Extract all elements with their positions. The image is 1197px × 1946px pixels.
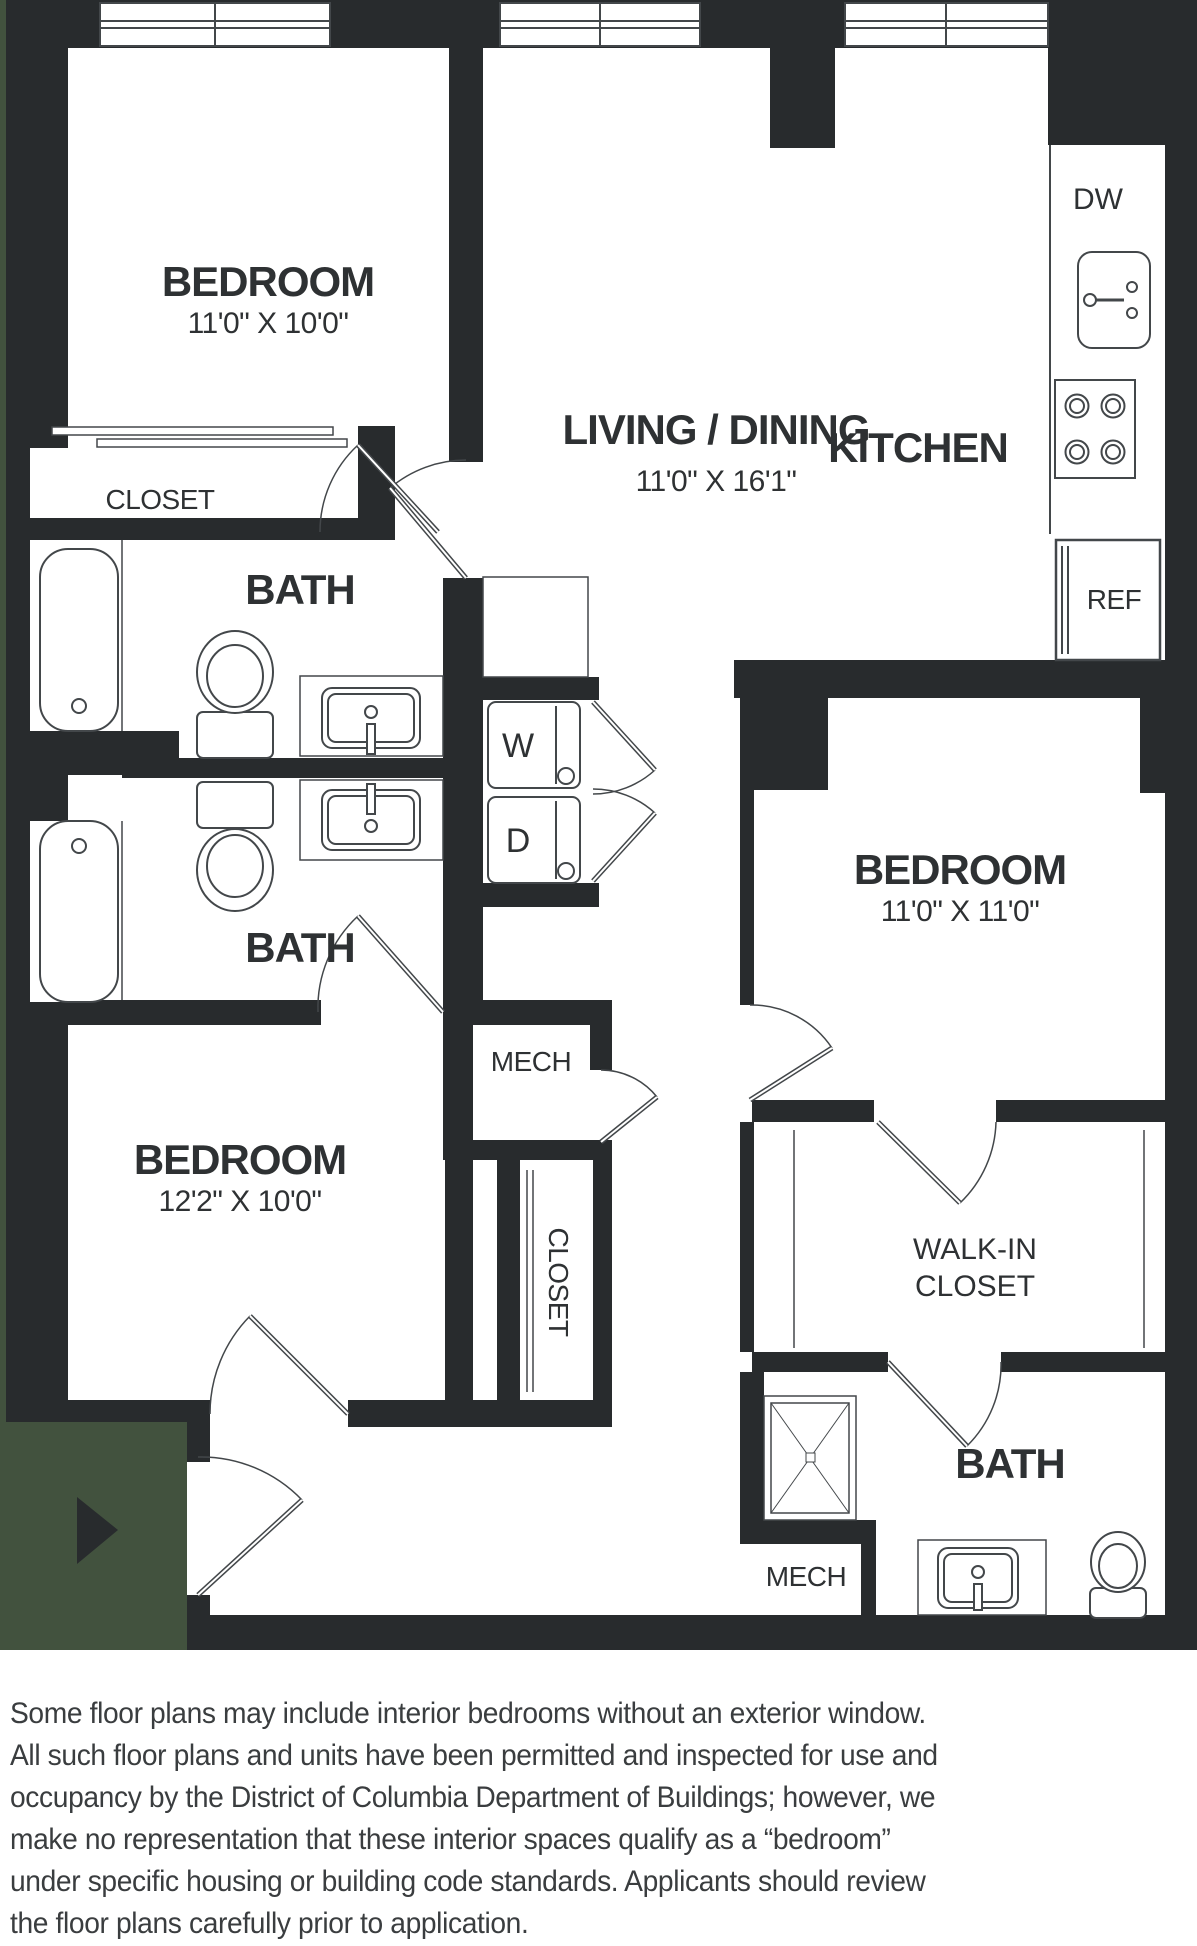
bypass-doors	[52, 427, 347, 447]
walls-layer	[6, 0, 1197, 1650]
bedroom1-label: BEDROOM	[162, 261, 374, 303]
living-dining-label: LIVING / DINING	[562, 409, 869, 451]
dishwasher-label: DW	[1073, 185, 1123, 215]
dryer-icon	[488, 797, 580, 883]
bath2-fixtures	[40, 780, 443, 1002]
walkin-label-line2: CLOSET	[915, 1272, 1035, 1302]
bathtub-icon	[40, 549, 118, 731]
disclaimer-line: make no representation that these interi…	[10, 1819, 1185, 1861]
bath1-fixtures	[40, 540, 443, 758]
windows	[100, 3, 1048, 46]
toilet-icon	[197, 631, 273, 758]
bedroom3-label: BEDROOM	[134, 1139, 346, 1181]
stove-icon	[1055, 380, 1135, 478]
disclaimer-line: the floor plans carefully prior to appli…	[10, 1903, 1185, 1945]
door-swing	[210, 1316, 348, 1414]
window-icon	[845, 3, 1048, 46]
bedroom3-dims: 12'2" X 10'0"	[158, 1187, 321, 1217]
kitchen-fixtures	[1050, 145, 1160, 660]
mech1-label: MECH	[491, 1048, 571, 1076]
mech2-label: MECH	[766, 1563, 846, 1591]
bath3-label: BATH	[955, 1443, 1065, 1485]
door-swing	[888, 1362, 1001, 1446]
kitchen-label: KITCHEN	[828, 427, 1008, 469]
disclaimer-line: under specific housing or building code …	[10, 1861, 1185, 1903]
floor-plan: BEDROOM 11'0" X 10'0" LIVING / DINING 11…	[0, 0, 1197, 1650]
kitchen-sink-icon	[1078, 252, 1150, 348]
disclaimer-line: All such floor plans and units have been…	[10, 1735, 1185, 1777]
bedroom1-dims: 11'0" X 10'0"	[188, 309, 349, 339]
closet1-label: CLOSET	[105, 486, 214, 514]
door-swing	[601, 1070, 657, 1142]
closet-rod-lines	[527, 1170, 533, 1392]
bedroom2-dims: 11'0" X 11'0"	[881, 897, 1040, 927]
sink-icon	[918, 1540, 1046, 1615]
walkin-label-line1: WALK-IN	[913, 1235, 1037, 1265]
sink-icon	[300, 780, 443, 860]
refrigerator-label: REF	[1087, 586, 1142, 614]
toilet-icon	[197, 782, 273, 911]
washer-label: W	[502, 729, 534, 763]
window-icon	[100, 3, 330, 46]
floorplan-page: { "meta": { "wall_color": "#282b2d", "ac…	[0, 0, 1197, 1946]
disclaimer-line: occupancy by the District of Columbia De…	[10, 1777, 1185, 1819]
closet2-label: CLOSET	[544, 1227, 572, 1336]
bedroom2-label: BEDROOM	[854, 849, 1066, 891]
bath2-label: BATH	[245, 927, 355, 969]
floor-plan-drawing	[0, 0, 1197, 1650]
sink-icon	[300, 676, 443, 756]
dryer-label: D	[506, 824, 531, 858]
shower-icon	[764, 1396, 856, 1520]
disclaimer-text: Some floor plans may include interior be…	[10, 1693, 1185, 1945]
cabinet-outline	[483, 577, 588, 677]
living-dining-dims: 11'0" X 16'1"	[636, 467, 797, 497]
door-swing	[750, 1005, 832, 1100]
door-swing	[878, 1122, 996, 1203]
door-swing	[198, 1457, 302, 1595]
bath1-label: BATH	[245, 569, 355, 611]
window-icon	[500, 3, 700, 46]
disclaimer-line: Some floor plans may include interior be…	[10, 1693, 1185, 1735]
laundry-fixtures	[483, 577, 588, 883]
door-swing	[593, 702, 655, 881]
toilet-icon	[1090, 1532, 1146, 1618]
bathtub-icon	[40, 821, 118, 1002]
